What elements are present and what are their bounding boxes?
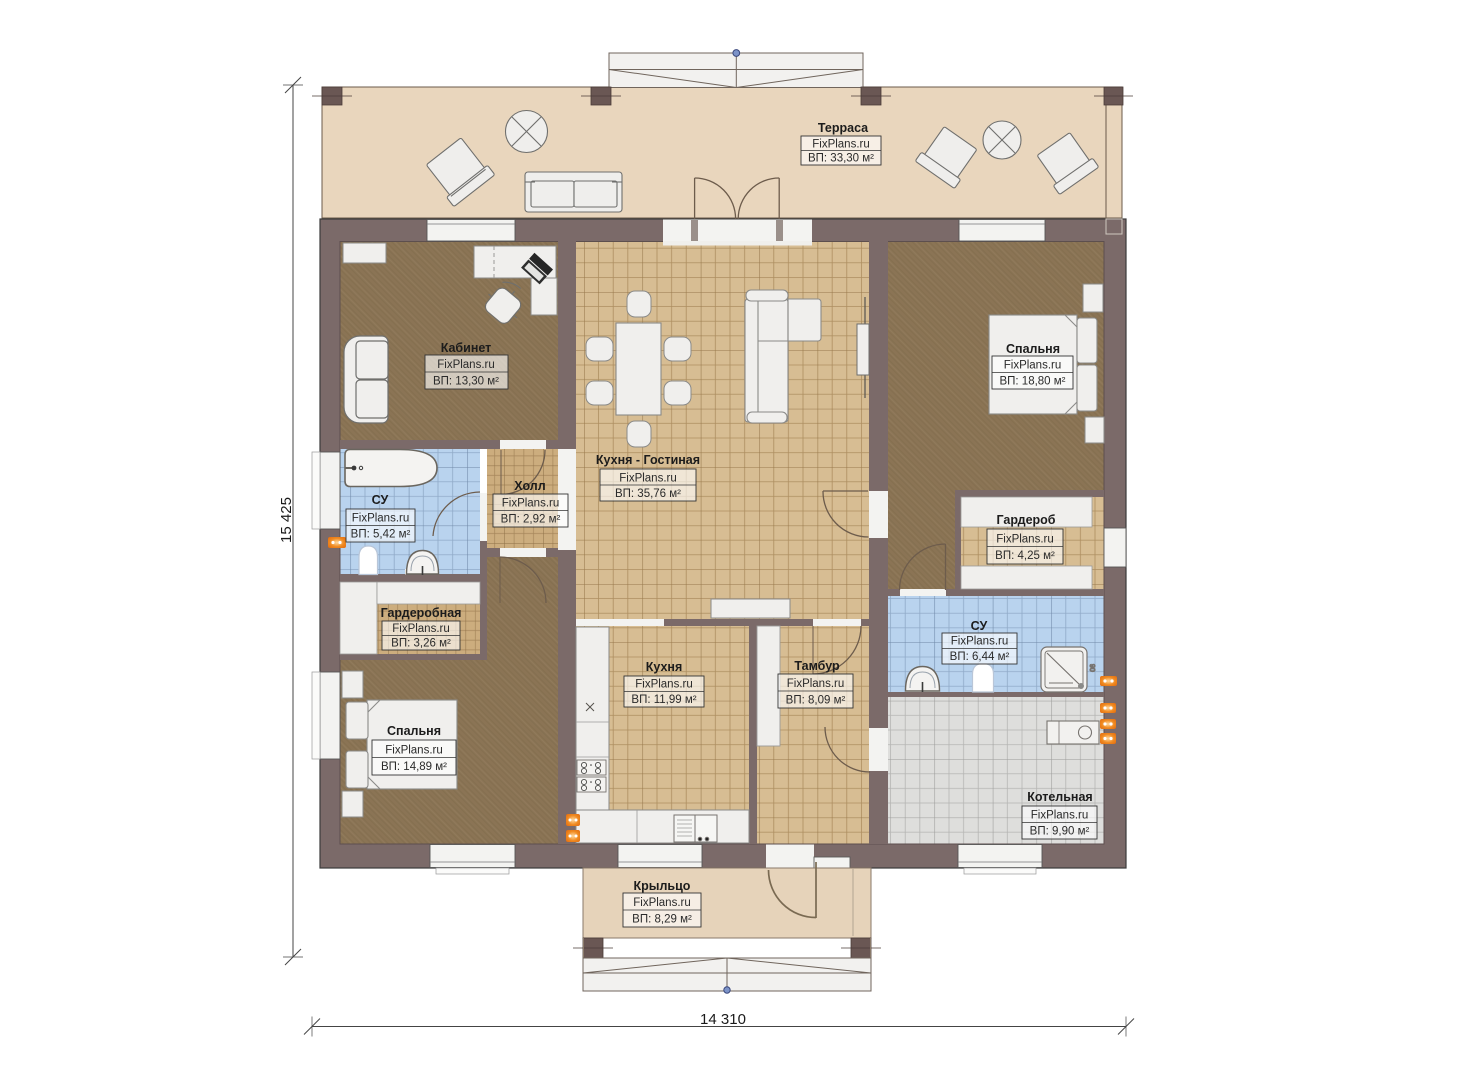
svg-text:ВП: 9,90 м²: ВП: 9,90 м² (1030, 826, 1090, 838)
svg-text:ВП: 33,30 м²: ВП: 33,30 м² (808, 153, 874, 165)
svg-text:FixPlans.ru: FixPlans.ru (352, 513, 410, 525)
svg-text:ВП: 18,80 м²: ВП: 18,80 м² (999, 376, 1065, 388)
svg-text:СУ: СУ (971, 619, 988, 633)
svg-text:СУ: СУ (372, 493, 389, 507)
svg-text:ВП: 14,89 м²: ВП: 14,89 м² (381, 761, 447, 773)
svg-text:ВП: 8,29 м²: ВП: 8,29 м² (632, 914, 692, 926)
svg-text:FixPlans.ru: FixPlans.ru (787, 678, 845, 690)
svg-text:Крыльцо: Крыльцо (634, 879, 691, 893)
svg-text:15 425: 15 425 (278, 497, 295, 543)
svg-text:Спальня: Спальня (1006, 342, 1060, 356)
svg-text:ВП: 11,99 м²: ВП: 11,99 м² (631, 694, 696, 706)
svg-text:FixPlans.ru: FixPlans.ru (1004, 360, 1062, 372)
svg-text:FixPlans.ru: FixPlans.ru (619, 473, 677, 485)
svg-text:ВП: 3,26 м²: ВП: 3,26 м² (391, 638, 451, 650)
svg-text:Тамбур: Тамбур (794, 659, 840, 673)
svg-text:Спальня: Спальня (387, 724, 441, 738)
svg-text:ВП: 8,09 м²: ВП: 8,09 м² (786, 695, 846, 707)
svg-text:ВП: 5,42 м²: ВП: 5,42 м² (351, 529, 411, 541)
svg-text:Холл: Холл (514, 479, 545, 493)
svg-text:FixPlans.ru: FixPlans.ru (812, 139, 870, 151)
svg-text:FixPlans.ru: FixPlans.ru (996, 534, 1054, 546)
svg-text:Гардероб: Гардероб (996, 513, 1055, 527)
svg-text:FixPlans.ru: FixPlans.ru (392, 623, 450, 635)
svg-text:FixPlans.ru: FixPlans.ru (633, 897, 691, 909)
svg-text:Гардеробная: Гардеробная (381, 606, 462, 620)
svg-text:ВП: 13,30 м²: ВП: 13,30 м² (433, 376, 499, 388)
svg-text:90: 90 (1088, 664, 1095, 672)
svg-text:Котельная: Котельная (1027, 790, 1092, 804)
svg-text:Терраса: Терраса (818, 121, 869, 135)
svg-text:FixPlans.ru: FixPlans.ru (951, 636, 1009, 648)
svg-text:ВП: 35,76 м²: ВП: 35,76 м² (615, 488, 681, 500)
svg-text:ВП: 2,92 м²: ВП: 2,92 м² (501, 514, 561, 526)
svg-text:Кухня: Кухня (646, 660, 683, 674)
svg-text:FixPlans.ru: FixPlans.ru (1031, 810, 1089, 822)
svg-text:FixPlans.ru: FixPlans.ru (437, 359, 495, 371)
svg-text:ВП: 6,44 м²: ВП: 6,44 м² (950, 651, 1010, 663)
svg-text:FixPlans.ru: FixPlans.ru (385, 745, 443, 757)
svg-text:Кабинет: Кабинет (441, 341, 492, 355)
svg-text:14 310: 14 310 (700, 1011, 746, 1028)
svg-text:FixPlans.ru: FixPlans.ru (635, 679, 693, 691)
svg-text:Кухня - Гостиная: Кухня - Гостиная (596, 453, 700, 467)
svg-text:ВП: 4,25 м²: ВП: 4,25 м² (995, 550, 1055, 562)
svg-text:FixPlans.ru: FixPlans.ru (502, 498, 560, 510)
